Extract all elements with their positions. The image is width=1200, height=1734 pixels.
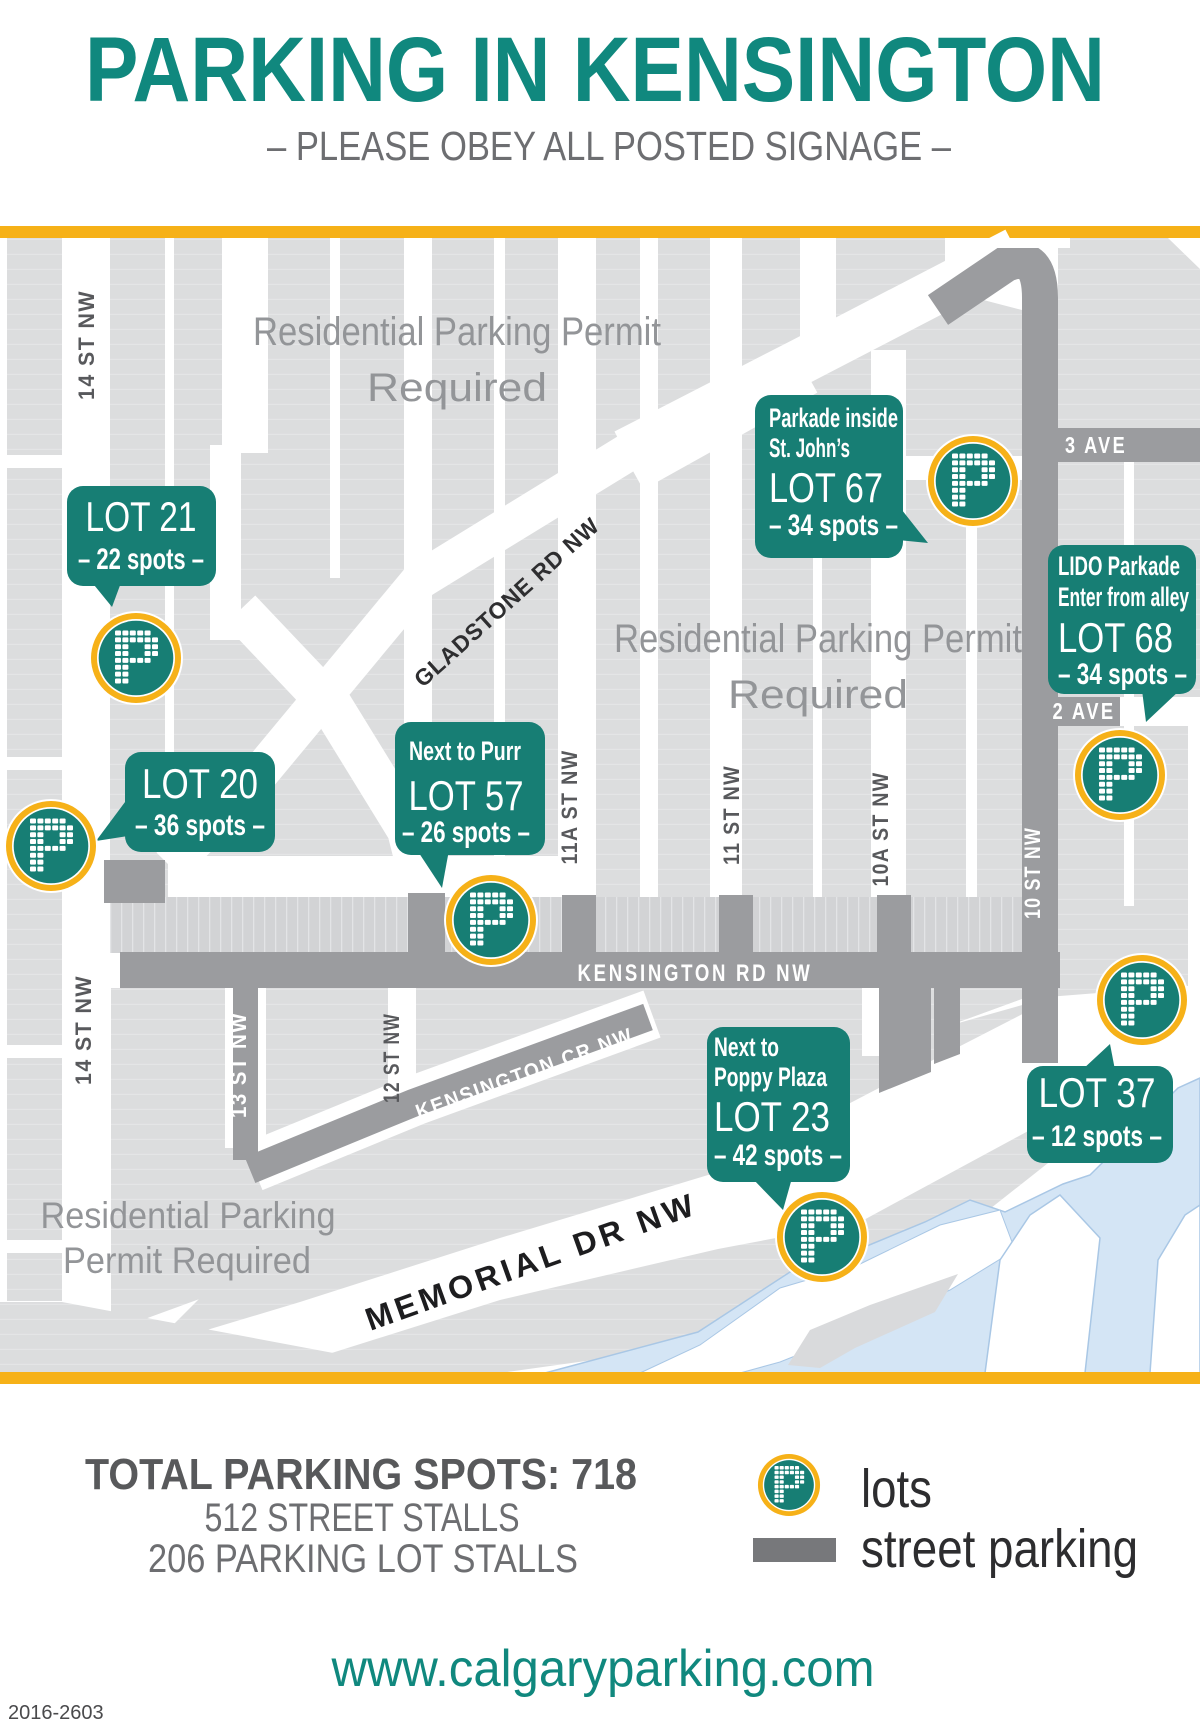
svg-text:– 42 spots –: – 42 spots – [714,1139,842,1172]
svg-text:LOT 57: LOT 57 [409,772,524,819]
svg-text:LOT 23: LOT 23 [714,1093,830,1140]
svg-text:www.calgaryparking.com: www.calgaryparking.com [331,1640,875,1698]
svg-text:LOT 21: LOT 21 [86,493,197,540]
svg-text:– 34 spots –: – 34 spots – [769,509,898,542]
svg-text:Residential Parking Permit: Residential Parking Permit [253,310,661,354]
svg-text:14 ST NW: 14 ST NW [74,290,99,400]
svg-text:2 AVE: 2 AVE [1053,698,1116,724]
svg-text:13 ST NW: 13 ST NW [226,1012,251,1118]
svg-text:11A ST NW: 11A ST NW [557,750,582,865]
svg-text:Poppy Plaza: Poppy Plaza [714,1062,828,1092]
svg-text:LIDO Parkade: LIDO Parkade [1058,551,1180,581]
svg-text:LOT 68: LOT 68 [1058,614,1173,661]
svg-text:14 ST NW: 14 ST NW [71,975,96,1085]
svg-text:– PLEASE OBEY ALL POSTED SIGNA: – PLEASE OBEY ALL POSTED SIGNAGE – [267,123,951,169]
svg-text:– 22 spots –: – 22 spots – [78,543,204,576]
svg-text:Parkade inside: Parkade inside [769,403,898,433]
svg-text:206 PARKING LOT STALLS: 206 PARKING LOT STALLS [148,1537,578,1581]
svg-text:12 ST NW: 12 ST NW [379,1013,404,1103]
svg-text:– 12 spots –: – 12 spots – [1032,1120,1162,1153]
svg-text:11 ST NW: 11 ST NW [719,765,744,865]
svg-text:street parking: street parking [861,1519,1138,1579]
svg-text:Enter from alley: Enter from alley [1058,582,1189,612]
svg-text:Next to: Next to [714,1032,779,1062]
svg-text:LOT 20: LOT 20 [142,760,258,807]
svg-text:Residential Parking: Residential Parking [41,1195,336,1236]
svg-text:lots: lots [861,1459,932,1519]
svg-text:10A ST NW: 10A ST NW [868,772,893,887]
svg-text:Residential Parking Permit: Residential Parking Permit [614,617,1022,661]
svg-text:2016-2603: 2016-2603 [8,1702,104,1724]
svg-text:3 AVE: 3 AVE [1065,432,1127,458]
svg-text:LOT 37: LOT 37 [1039,1069,1156,1116]
svg-text:Required: Required [728,673,908,717]
svg-text:PARKING IN KENSINGTON: PARKING IN KENSINGTON [85,19,1105,121]
svg-text:– 34 spots –: – 34 spots – [1058,658,1187,691]
svg-text:TOTAL PARKING SPOTS: 718: TOTAL PARKING SPOTS: 718 [85,1450,637,1499]
svg-text:512 STREET STALLS: 512 STREET STALLS [205,1496,520,1540]
svg-text:Required: Required [367,366,547,410]
svg-text:Next to Purr: Next to Purr [409,736,521,766]
svg-text:LOT 67: LOT 67 [769,464,883,511]
svg-text:– 36 spots –: – 36 spots – [135,809,265,842]
svg-text:St. John’s: St. John’s [769,433,850,463]
svg-text:– 26 spots –: – 26 spots – [402,816,530,849]
svg-text:10 ST NW: 10 ST NW [1020,827,1045,919]
svg-text:KENSINGTON RD NW: KENSINGTON RD NW [578,960,813,987]
svg-text:Permit Required: Permit Required [63,1240,311,1281]
